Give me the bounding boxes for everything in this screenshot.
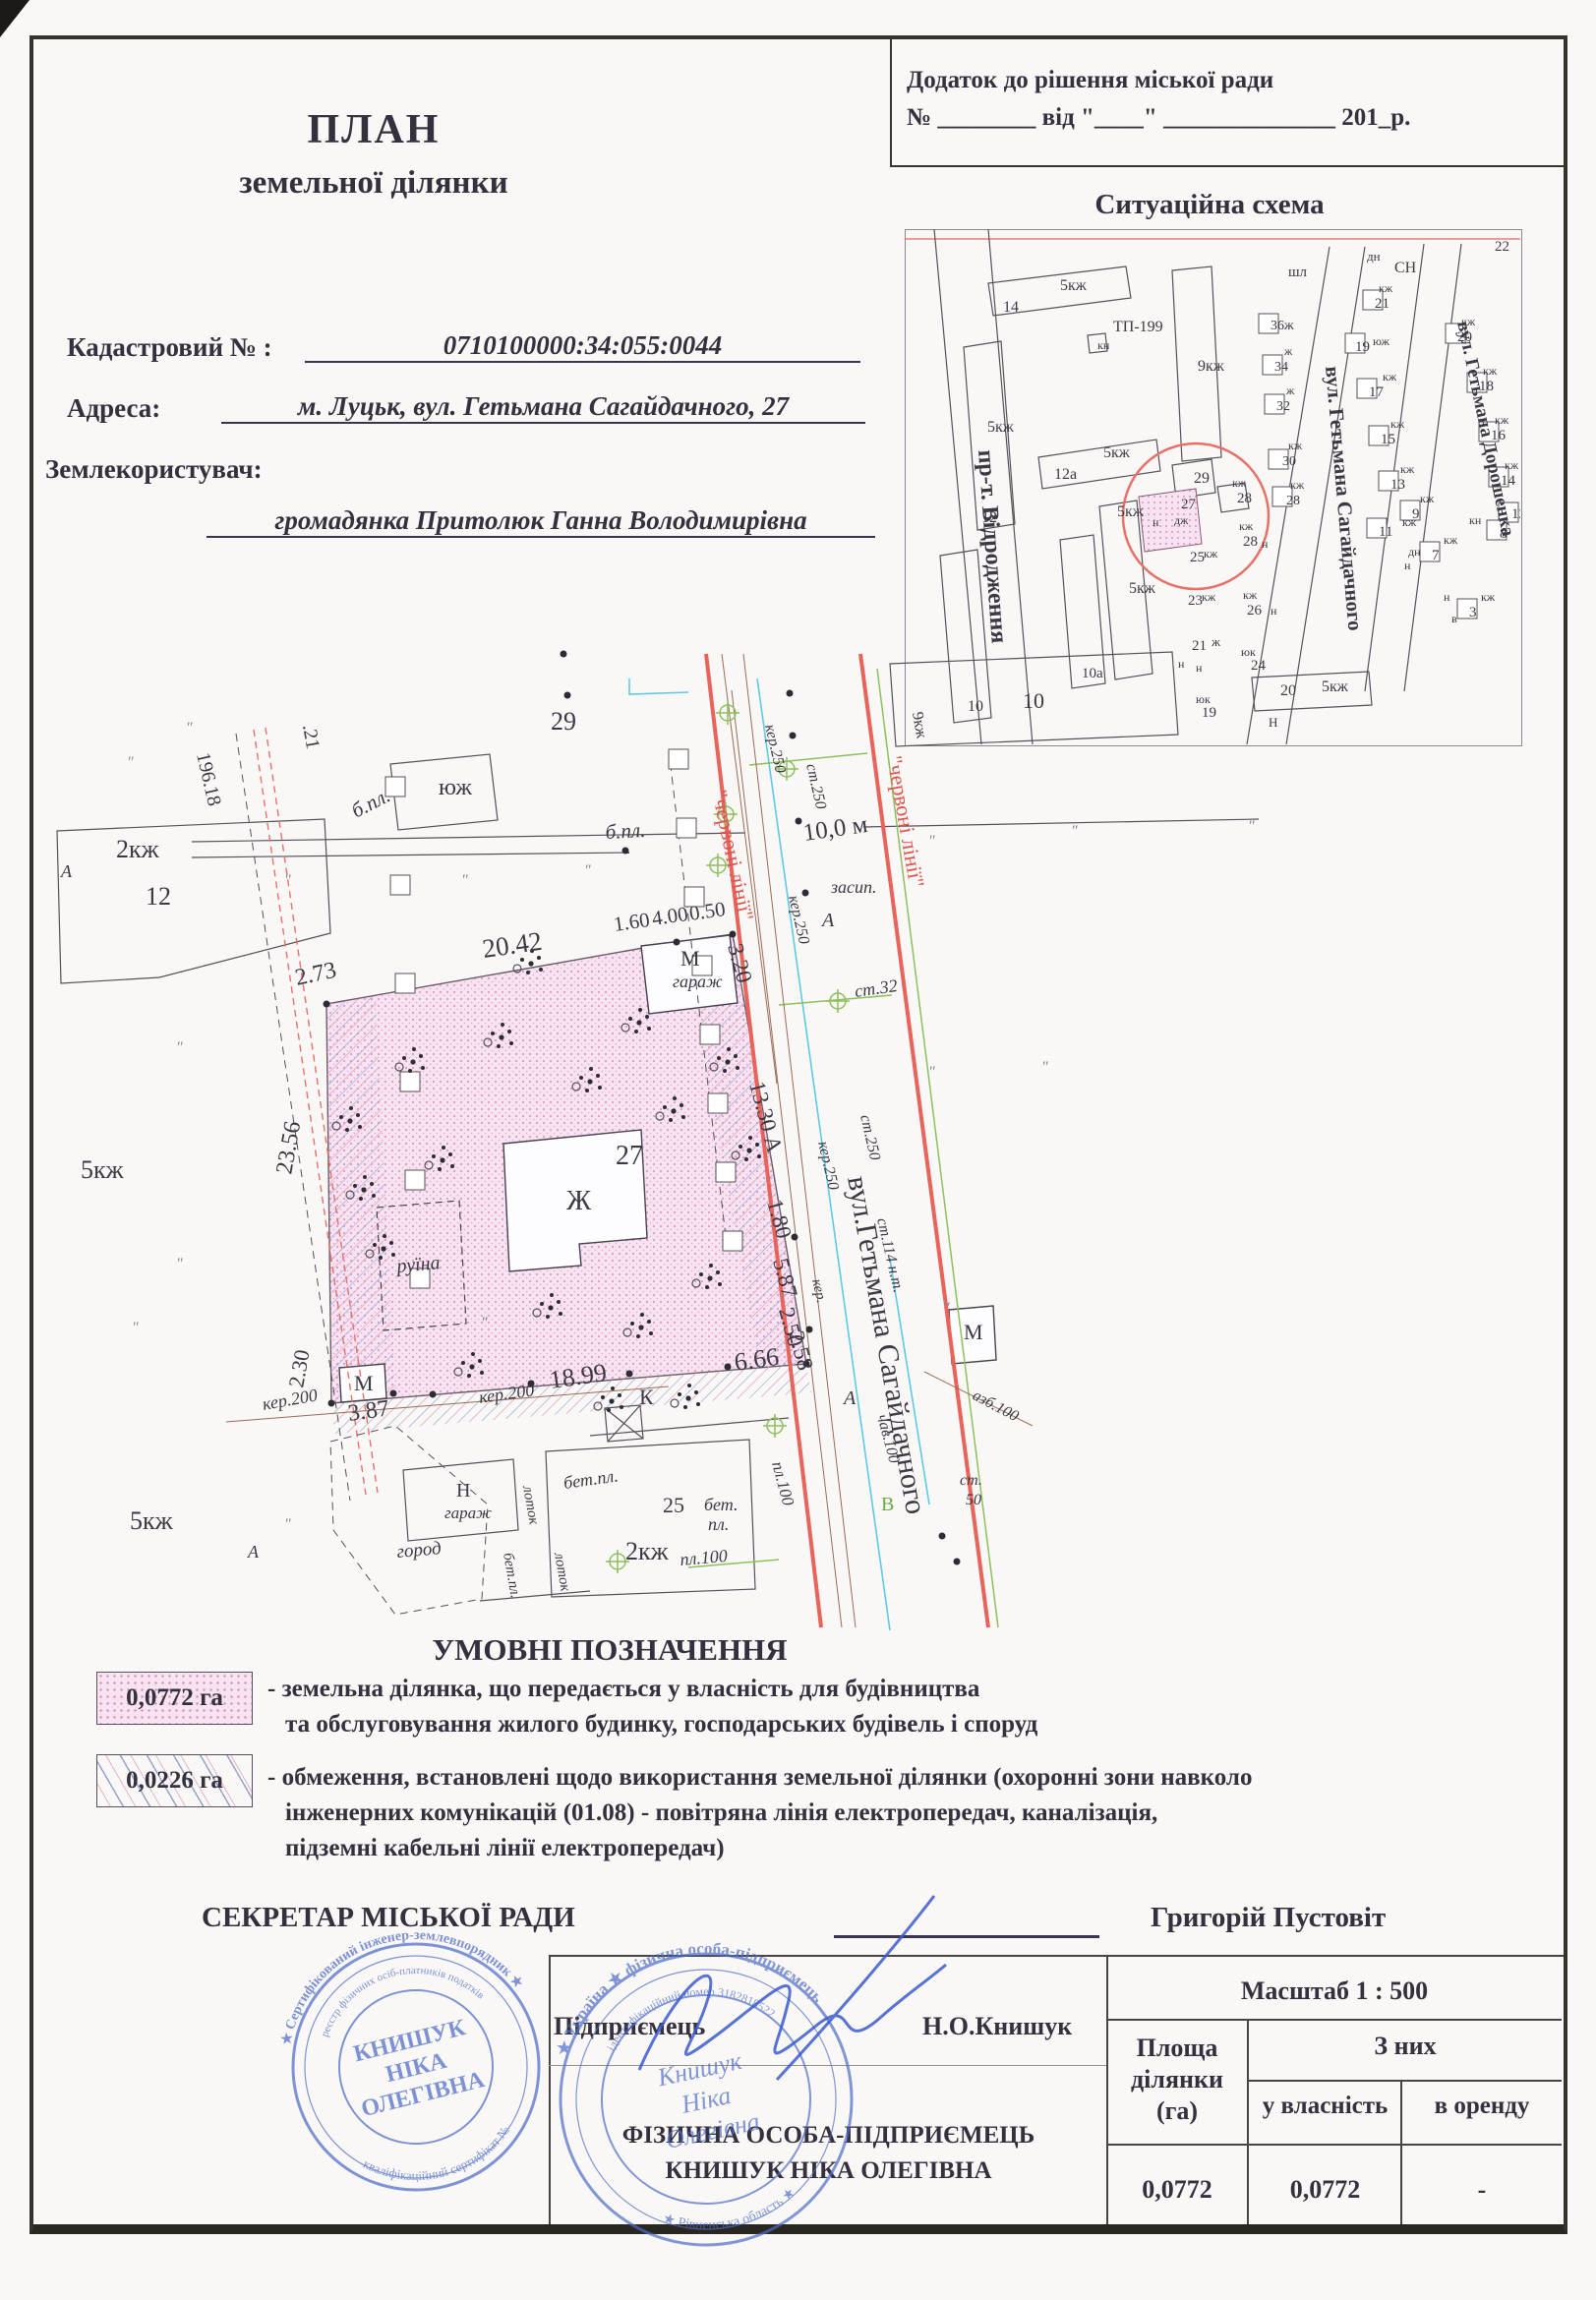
map-label: 5кж — [1129, 580, 1156, 597]
map-label: К — [639, 1385, 654, 1409]
map-label: 28 — [1237, 491, 1252, 506]
map-label: 21 — [1375, 296, 1389, 312]
map-label: 5кж — [987, 419, 1015, 436]
map-label: Ж — [566, 1186, 592, 1216]
map-label: ″ — [133, 1320, 140, 1336]
map-label: кж — [1461, 315, 1476, 328]
lease-value: - — [1402, 2175, 1562, 2205]
col-header-area: ділянки — [1108, 2065, 1246, 2094]
map-label: в — [1451, 612, 1457, 625]
survey-point — [564, 692, 571, 699]
map-label: гараж — [673, 972, 723, 991]
survey-point — [725, 1364, 732, 1371]
map-label: кер. — [808, 1277, 829, 1305]
marker-square — [708, 1093, 728, 1113]
marker-square — [723, 1231, 742, 1251]
scan-corner-artifact — [0, 0, 30, 37]
legend-swatch-parcel: 0,0772 га — [96, 1672, 253, 1725]
table-border — [1106, 2019, 1562, 2021]
map-shape — [57, 819, 330, 983]
legend-item1-line2: та обслуговування жилого будинку, господ… — [267, 1707, 1261, 1742]
map-label: кж — [1379, 281, 1393, 295]
map-line — [629, 678, 688, 694]
fop-line2: КНИШУК НІКА ОЛЕГІВНА — [551, 2157, 1106, 2185]
map-label: 20 — [1457, 329, 1472, 345]
survey-point — [622, 848, 629, 855]
marker-square — [400, 1072, 420, 1091]
map-label: 9 — [1412, 506, 1420, 522]
map-label: 5кж — [1103, 444, 1131, 461]
map-label: 26 — [1247, 603, 1263, 619]
map-label: кж — [1290, 478, 1305, 492]
map-label: ст.32 — [854, 975, 899, 1001]
marker-square — [395, 973, 415, 993]
map-label: 196.18 — [192, 750, 225, 808]
map-label: н — [1271, 604, 1277, 618]
survey-point — [787, 690, 794, 697]
legend-area-restricted: 0,0226 га — [126, 1767, 223, 1795]
map-label: н — [1153, 515, 1159, 529]
map-label: ″ — [585, 862, 592, 879]
map-label: 27 — [1181, 497, 1197, 512]
marker-square — [669, 749, 688, 769]
legend-item2-line3: підземні кабельні лінії електропередач) — [267, 1831, 1428, 1866]
landuser-value: громадянка Притолюк Ганна Володимирівна — [207, 505, 875, 538]
map-label: кер.250 — [814, 1140, 842, 1192]
map-label: 18 — [1479, 379, 1494, 394]
map-label: кж — [1390, 417, 1405, 431]
map-label: 12а — [1054, 466, 1077, 483]
map-label: кж — [1288, 439, 1303, 452]
map-label: ″ — [128, 754, 135, 771]
map-label: н — [1444, 590, 1450, 604]
map-label: 4.00 — [650, 902, 689, 930]
annex-line2: № ________ від "____" ______________ 201… — [907, 104, 1556, 132]
col-header-ownership: у власність — [1249, 2093, 1401, 2120]
map-label: ж — [1283, 344, 1293, 358]
map-label: дн — [1367, 249, 1381, 264]
map-label: .21 — [298, 723, 324, 750]
survey-point — [674, 939, 680, 946]
map-label: 5кж — [130, 1506, 174, 1535]
map-label: кн — [1097, 338, 1110, 352]
map-label: 17 — [1369, 384, 1385, 400]
survey-point — [626, 1371, 633, 1378]
page-title: ПЛАН — [177, 106, 570, 153]
map-label: кер.250 — [785, 894, 812, 946]
map-label: ″ — [929, 1064, 936, 1081]
map-label: 36ж — [1271, 319, 1294, 333]
legend-area-owned: 0,0772 га — [126, 1684, 223, 1712]
map-label: 12 — [981, 509, 997, 526]
map-label: дж — [1174, 513, 1189, 527]
map-label: 5кж — [1117, 503, 1145, 520]
map-label: ″ — [929, 833, 936, 850]
map-label: 28 — [1243, 534, 1258, 550]
address-value: м. Луцьк, вул. Гетьмана Сагайдачного, 27 — [221, 391, 865, 424]
col-header-lease: в оренду — [1402, 2093, 1562, 2120]
survey-point — [390, 1390, 397, 1397]
map-label: ″ — [177, 1039, 184, 1056]
legend-item-restriction: - обмеження, встановлені щодо використан… — [267, 1760, 1428, 1866]
map-label: 10 — [1023, 688, 1044, 713]
annex-line1: Додаток до рішення міської ради — [907, 67, 1556, 94]
map-label: ″ — [1072, 823, 1079, 840]
map-label: 14 — [1003, 299, 1019, 316]
utility-symbol — [716, 701, 739, 725]
map-label: 28 — [1286, 494, 1300, 508]
map-label: гараж — [444, 1504, 492, 1522]
map-label: руїна — [394, 1252, 442, 1277]
map-label: пл.100 — [768, 1459, 798, 1508]
col-header-ofthem: З них — [1249, 2032, 1562, 2061]
survey-point — [328, 1400, 335, 1407]
secretary-label: СЕКРЕТАР МІСЬКОЇ РАДИ — [202, 1902, 575, 1934]
marker-square — [700, 1025, 720, 1044]
map-label: ″ — [285, 1516, 292, 1533]
map-label: 32 — [1276, 399, 1290, 414]
table-border — [1106, 2144, 1562, 2146]
map-label: вул. Гетьмана Сагайдачного — [1321, 365, 1367, 631]
map-label: 25 — [663, 1493, 684, 1517]
map-label: пр-т. Відродження — [973, 449, 1012, 644]
legend-title: УМОВНІ ПОЗНАЧЕННЯ — [315, 1632, 905, 1668]
land-plan-drawing: 196.18.2129южб.пл.б.пл.2кж125кж5кжАА2.73… — [39, 639, 1554, 1632]
map-label: 2кж — [116, 835, 160, 863]
map-label: юж — [1373, 334, 1390, 348]
utility-symbol — [763, 1414, 787, 1438]
map-label: 29 — [551, 707, 576, 736]
survey-point — [430, 1391, 437, 1398]
secretary-name: Григорій Пустовіт — [1151, 1902, 1386, 1934]
survey-point — [790, 733, 797, 739]
map-label: 12 — [1511, 506, 1520, 522]
map-label: ТП-199 — [1113, 319, 1163, 335]
utility-symbol — [826, 989, 850, 1013]
legend-item-parcel: - земельна ділянка, що передається у вла… — [267, 1672, 1261, 1742]
map-label: кж — [1243, 588, 1258, 602]
map-label: 2.30 — [283, 1348, 314, 1389]
map-label: бет.пл. — [500, 1552, 523, 1600]
map-label: б.пл. — [605, 818, 646, 844]
survey-point — [561, 651, 567, 658]
map-label: 23.56 — [271, 1119, 306, 1176]
legend-item2-line2: інженерних комунікацій (01.08) - повітря… — [267, 1796, 1428, 1831]
table-bottom-border — [33, 2224, 1564, 2230]
map-label: ″ — [285, 872, 292, 889]
map-label: 50 — [966, 1492, 981, 1508]
map-label: 34 — [1274, 360, 1288, 375]
map-label: 9кж — [909, 711, 930, 740]
map-label: юж — [439, 775, 472, 800]
map-label: кж — [1444, 533, 1458, 547]
map-label: 30 — [1282, 454, 1296, 469]
survey-point — [324, 1001, 330, 1008]
map-label: А — [60, 861, 73, 881]
scheme-title: Ситуаційна схема — [983, 189, 1436, 221]
map-label: ″ — [1042, 1059, 1049, 1076]
map-label: ст. — [960, 1472, 982, 1489]
map-label: 25 — [1190, 550, 1205, 565]
col-header-area: (га) — [1108, 2096, 1246, 2126]
map-line — [192, 833, 745, 842]
scale-value: Масштаб 1 : 500 — [1108, 1976, 1561, 2006]
map-label: азб.100 — [970, 1387, 1021, 1426]
map-label: 27 — [616, 1141, 643, 1171]
annex-divider-vertical — [890, 35, 892, 167]
map-label: бет. — [704, 1495, 739, 1514]
map-label: кер.250 — [761, 723, 789, 775]
map-label: 7 — [1432, 548, 1440, 563]
marker-square — [677, 818, 696, 838]
map-label: кж — [1400, 462, 1415, 476]
page-subtitle: земельної ділянки — [128, 165, 620, 202]
map-label: ст.250 — [857, 1113, 883, 1161]
map-label: 19 — [1355, 339, 1370, 355]
map-label: А — [842, 1387, 857, 1409]
map-line — [749, 753, 867, 765]
map-label: бет.пл. — [562, 1465, 620, 1493]
col-header-area: Площа — [1108, 2034, 1246, 2063]
annex-divider-horizontal — [890, 165, 1564, 167]
map-label: кж — [1232, 476, 1247, 490]
map-label: ″ — [462, 872, 469, 889]
fop-line1: ФІЗИЧНА ОСОБА-ПІДПРИЄМЕЦЬ — [551, 2122, 1106, 2150]
map-label: 14 — [1501, 473, 1516, 489]
map-label: ст.250 — [802, 762, 829, 810]
map-label: кн — [1469, 513, 1482, 527]
scanned-land-plan-document: ПЛАН земельної ділянки Додаток до рішенн… — [0, 0, 1596, 2300]
survey-point — [939, 1533, 946, 1540]
marker-square — [385, 777, 405, 796]
map-label: кж — [1481, 590, 1496, 604]
map-label: пл. — [708, 1514, 729, 1534]
map-label: А — [820, 910, 835, 931]
map-label: кер.200 — [261, 1385, 319, 1414]
survey-point — [954, 1559, 961, 1565]
map-label: Н — [456, 1480, 470, 1502]
legend-item2-line1: - обмеження, встановлені щодо використан… — [267, 1760, 1428, 1796]
map-label: кж — [1383, 370, 1397, 383]
map-label: 12 — [146, 882, 171, 911]
map-label: город — [396, 1538, 443, 1563]
legend-item1-line1: - земельна ділянка, що передається у вла… — [267, 1672, 1261, 1707]
legend-swatch-restriction: 0,0226 га — [96, 1754, 253, 1807]
survey-point — [730, 931, 737, 938]
map-label: кж — [1483, 364, 1498, 378]
map-label: 10,0 м — [801, 811, 869, 847]
map-label: ″ — [944, 1300, 951, 1317]
table-border — [549, 2065, 1106, 2066]
map-label: М — [964, 1320, 983, 1344]
map-line — [1365, 244, 1424, 691]
landuser-label: Землекористувач: — [45, 454, 263, 485]
map-label: дн — [1408, 545, 1421, 559]
map-label: 15 — [1381, 432, 1395, 447]
address-label: Адреса: — [67, 393, 160, 424]
secretary-signature-line — [834, 1908, 1099, 1938]
map-line — [608, 1405, 640, 1442]
map-label: 9кж — [1198, 358, 1225, 375]
map-label: 5кж — [81, 1155, 125, 1184]
cadastral-label: Кадастровий № : — [67, 332, 272, 363]
map-label: 16 — [1491, 428, 1507, 443]
map-label: М — [680, 946, 700, 971]
marker-square — [405, 1170, 425, 1190]
map-label: кж — [1420, 492, 1435, 505]
map-label: вул. Гетьмана Дорошенка — [1452, 320, 1518, 539]
map-label: кж — [1495, 413, 1509, 427]
map-label: ″ — [1249, 818, 1256, 835]
map-label: ″ — [482, 1315, 489, 1331]
map-label: 11 — [1379, 524, 1392, 540]
cadastral-value: 0710100000:34:055:0044 — [305, 330, 860, 363]
map-label: А — [247, 1542, 260, 1562]
map-label: пл.100 — [680, 1546, 729, 1569]
map-label: ″ — [177, 1256, 184, 1272]
map-label: ж — [1285, 383, 1295, 397]
map-label: кж — [1204, 547, 1218, 560]
table-border — [549, 1955, 1564, 1957]
entrepreneur-label: Підприємець — [554, 2012, 705, 2041]
map-label: шл — [1288, 265, 1308, 280]
map-label: кж — [1505, 458, 1519, 472]
table-border — [549, 1955, 551, 2227]
map-label: 1.60 — [612, 908, 651, 936]
map-label: 29 — [1194, 470, 1210, 487]
ownership-value: 0,0772 — [1249, 2175, 1401, 2205]
map-label: лоток — [519, 1484, 542, 1527]
map-label: 2кж — [625, 1537, 670, 1565]
entrepreneur-name: Н.О.Книшук — [922, 2012, 1072, 2041]
marker-square — [716, 1162, 736, 1182]
table-border — [1247, 2080, 1562, 2082]
map-label: засип. — [830, 877, 877, 897]
map-label: 0.50 — [687, 897, 727, 925]
map-label: кж — [1239, 519, 1254, 533]
map-label: кж — [1202, 590, 1216, 604]
map-label: 8 — [1500, 526, 1507, 542]
map-label: 22 — [1495, 239, 1509, 255]
map-label: 23 — [1188, 593, 1203, 609]
map-label: н — [1262, 537, 1269, 551]
survey-point — [802, 890, 809, 897]
map-label: 5кж — [1060, 277, 1088, 294]
map-label: В — [881, 1494, 894, 1515]
map-line — [192, 853, 629, 857]
map-label: 20.42 — [481, 926, 544, 964]
map-line — [863, 819, 1259, 827]
marker-square — [390, 875, 410, 895]
map-label: СН — [1394, 260, 1417, 276]
map-label: 3 — [1469, 605, 1477, 620]
map-label: 13 — [1390, 477, 1405, 493]
area-value: 0,0772 — [1108, 2175, 1246, 2205]
map-label: М — [354, 1371, 374, 1395]
map-label: ″ — [187, 720, 194, 737]
map-label: н — [1404, 559, 1411, 572]
map-label: лоток — [551, 1551, 573, 1594]
